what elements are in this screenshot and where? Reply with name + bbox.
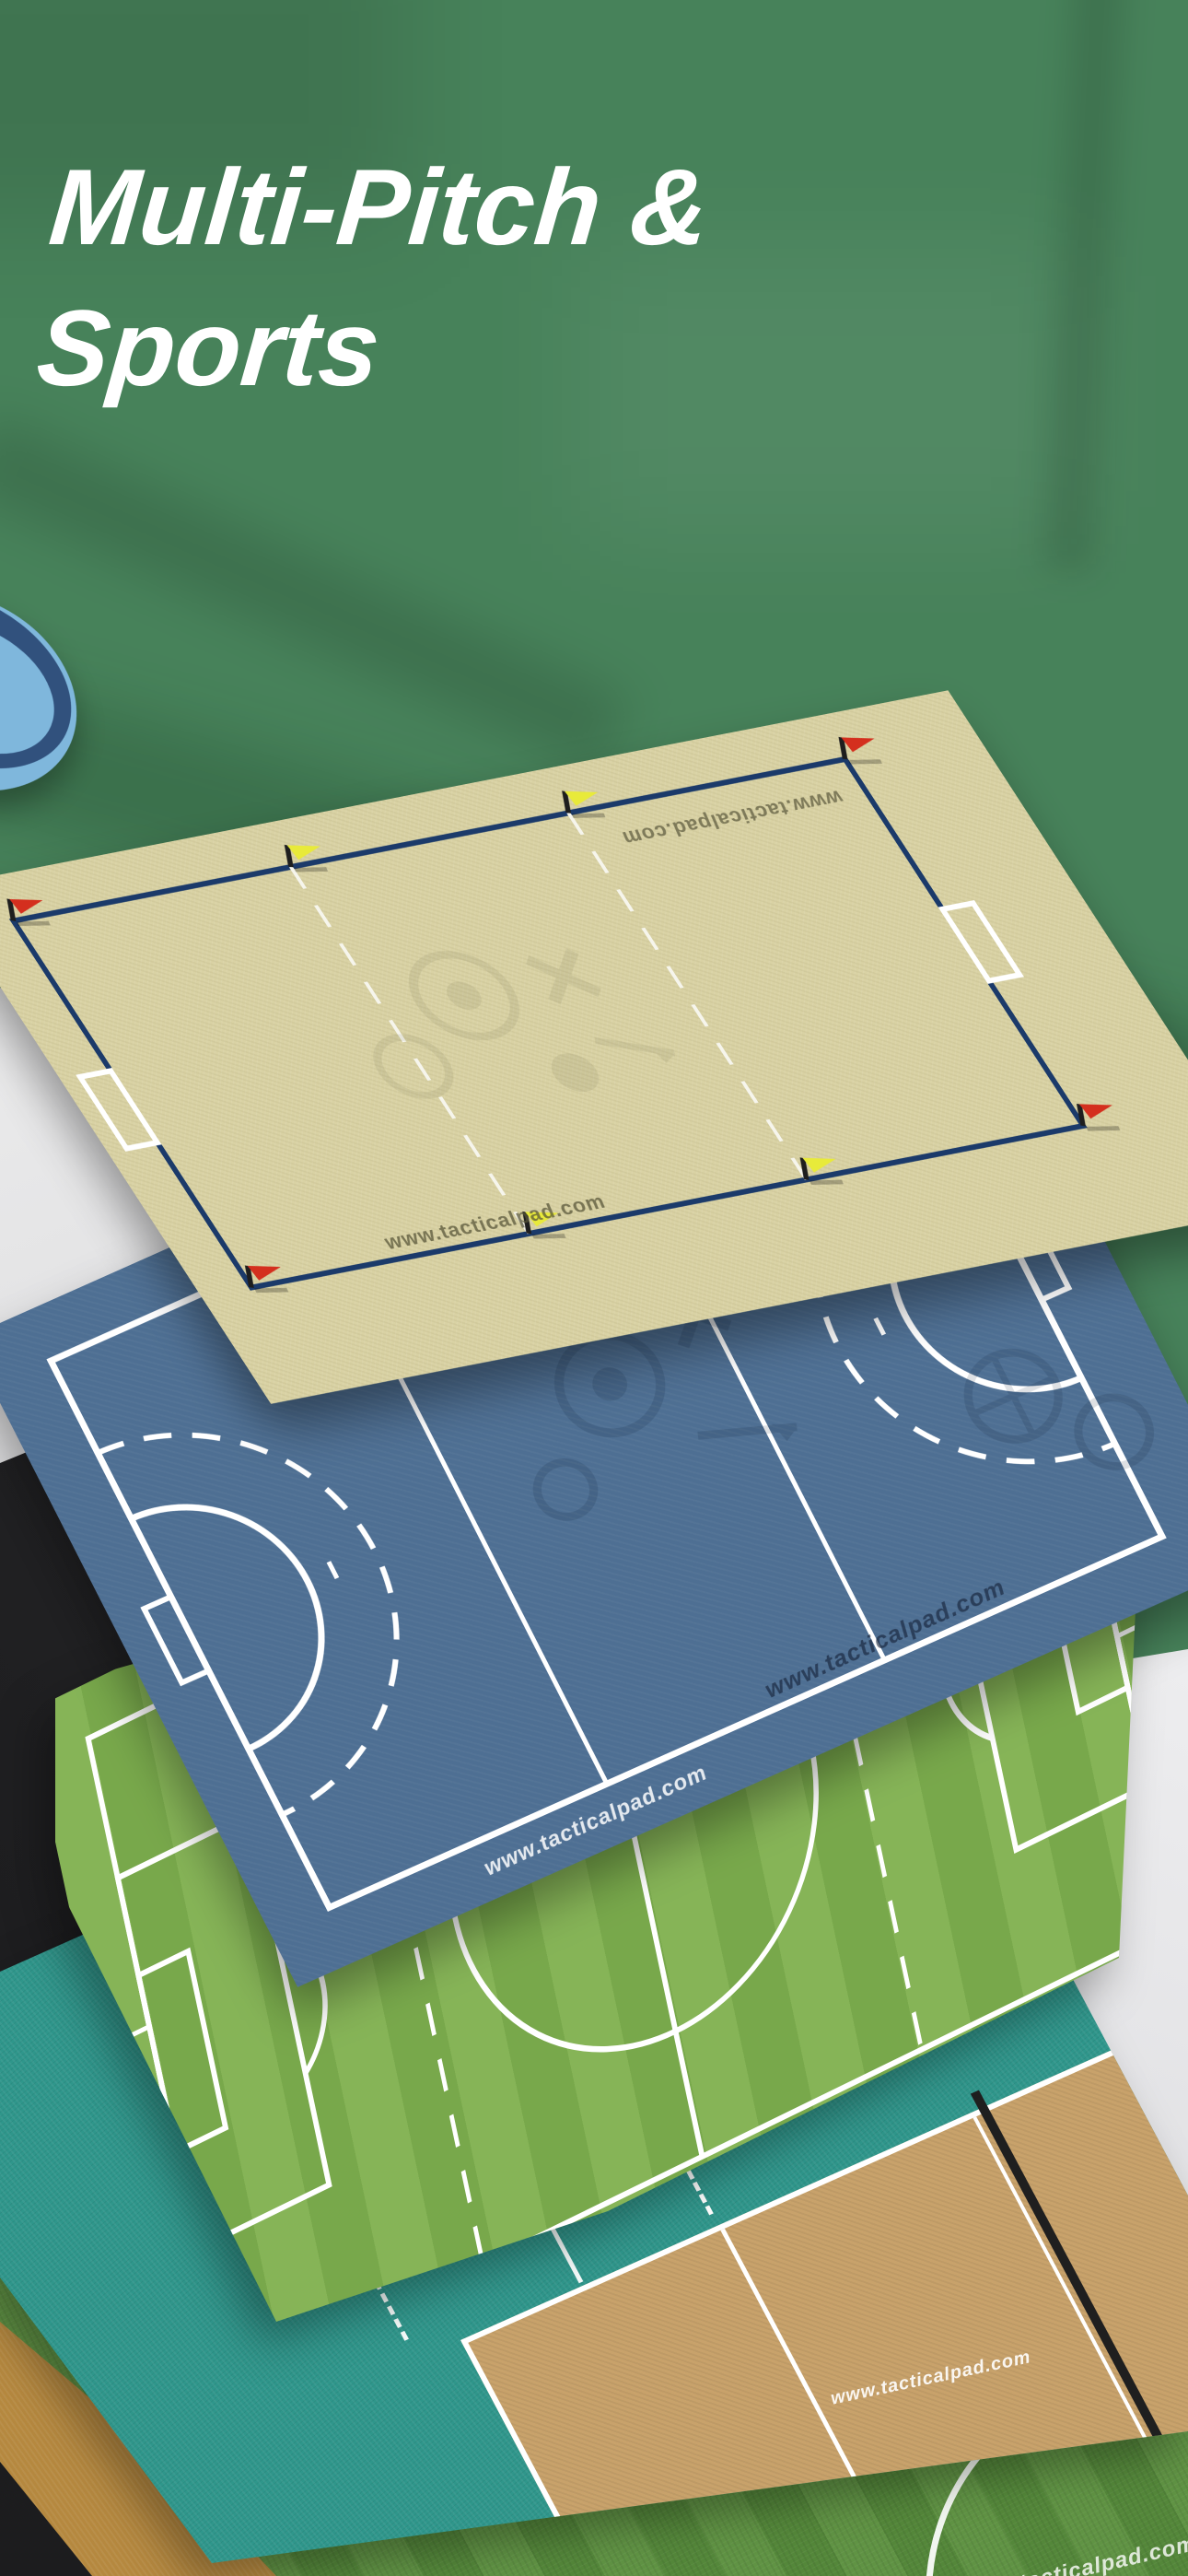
whistle-icon [528, 1454, 603, 1526]
goal-frame [144, 1597, 208, 1682]
goal-frame [942, 903, 1019, 980]
goal-area-line [138, 1951, 226, 2152]
goal-frame [124, 2027, 165, 2113]
imaginary-third-line-dashed [568, 813, 806, 1179]
goal-area-arc [132, 1466, 367, 1749]
promo-screenshot-canvas: Multi-Pitch & Sports www.tacticalpad.com [0, 0, 1188, 2576]
soccer-ball-icon [588, 1363, 633, 1406]
imaginary-third-line-dashed [291, 867, 529, 1234]
penalty-mark [876, 1318, 884, 1335]
faint-sports-icons [321, 926, 686, 1124]
penalty-mark [329, 1562, 337, 1578]
watermark-url: www.tacticalpad.com [760, 1573, 1009, 1704]
bocce-ball-icon [543, 1050, 607, 1095]
watermark-url: www.tacticalpad.com [118, 2066, 186, 2301]
tactic-arrow-icon [650, 1043, 679, 1063]
volleyball-icon [364, 1032, 462, 1100]
tactic-arrow-icon [595, 1028, 674, 1065]
volleyball-icon [1066, 1387, 1162, 1478]
tactic-x-icon [528, 951, 600, 1001]
soccer-ball-icon [441, 979, 487, 1012]
